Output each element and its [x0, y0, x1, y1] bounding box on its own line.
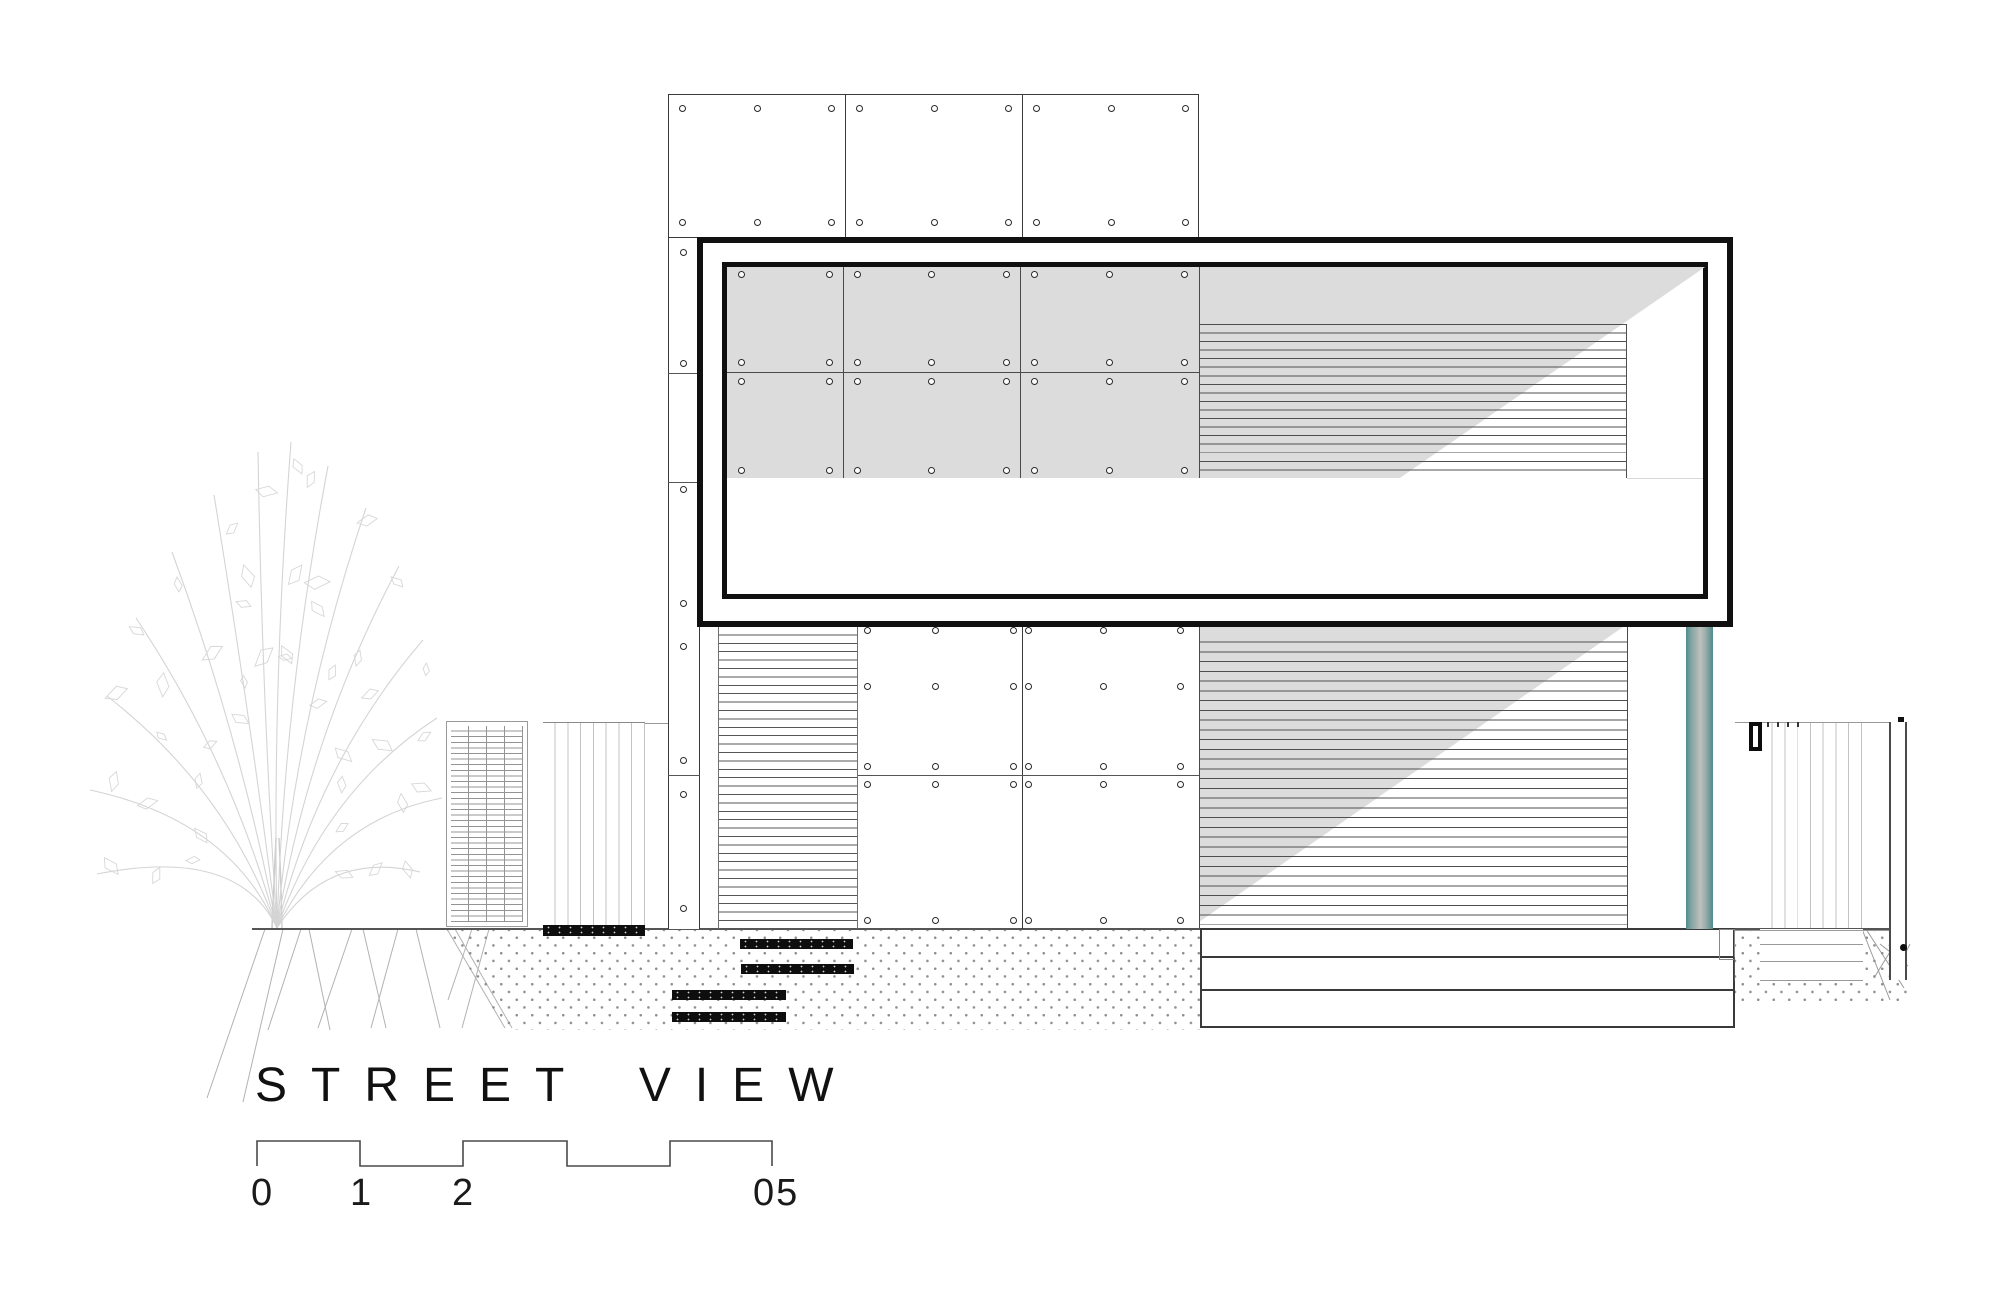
- lower-louver-screen: [1199, 633, 1627, 925]
- panel-bolt: [1177, 683, 1184, 690]
- panel-bolt: [679, 219, 686, 226]
- panel-joint-line: [1627, 478, 1703, 479]
- panel-bolt: [1005, 105, 1012, 112]
- fence-base-step: [543, 925, 645, 936]
- scale-bar-line: [257, 1141, 772, 1166]
- panel-bolt: [1106, 467, 1113, 474]
- left-panel-strip: [668, 238, 700, 929]
- panel-bolt: [1106, 378, 1113, 385]
- scale-label-5: 05: [753, 1172, 799, 1215]
- panel-bolt: [1031, 271, 1038, 278]
- panel-bolt: [1033, 105, 1040, 112]
- panel-bolt: [1010, 763, 1017, 770]
- panel-bolt: [1025, 763, 1032, 770]
- panel-bolt: [680, 600, 687, 607]
- panel-bolt: [1177, 763, 1184, 770]
- panel-bolt: [1181, 271, 1188, 278]
- fence-tick: [1787, 722, 1789, 727]
- panel-bolt: [754, 105, 761, 112]
- panel-bolt: [1025, 627, 1032, 634]
- panel-bolt: [680, 360, 687, 367]
- panel-joint-line: [1199, 267, 1200, 478]
- panel-joint-line: [858, 775, 1199, 776]
- deck-band: [1200, 989, 1735, 1028]
- fence-post-dot: [1900, 944, 1907, 951]
- panel-bolt: [1031, 359, 1038, 366]
- step-tread: [741, 964, 854, 974]
- panel-bolt: [680, 249, 687, 256]
- fence-post: [1889, 722, 1907, 980]
- panel-joint-line: [1627, 627, 1628, 928]
- panel-bolt: [1182, 219, 1189, 226]
- top-panel-band: [668, 94, 1199, 238]
- buried-wall-band: [1760, 929, 1863, 981]
- panel-bolt: [754, 219, 761, 226]
- fence-letterbox: [1749, 722, 1762, 751]
- panel-bolt: [932, 627, 939, 634]
- panel-bolt: [1108, 105, 1115, 112]
- deck-plinth: [1200, 928, 1735, 1028]
- panel-joint-line: [645, 723, 668, 724]
- deck-band: [1200, 928, 1735, 958]
- panel-bolt: [1003, 378, 1010, 385]
- panel-bolt: [1100, 781, 1107, 788]
- panel-bolt: [1108, 219, 1115, 226]
- panel-bolt: [1177, 627, 1184, 634]
- panel-joint-line: [668, 373, 700, 374]
- buried-band-row: [1760, 929, 1863, 945]
- drawing-title: STREET VIEW: [255, 1058, 875, 1113]
- panel-bolt: [826, 271, 833, 278]
- lattice-gate-panel: [446, 721, 528, 927]
- fence-tick: [1767, 722, 1769, 727]
- panel-bolt: [1181, 378, 1188, 385]
- panel-joint-line: [668, 775, 700, 776]
- panel-bolt: [854, 271, 861, 278]
- panel-bolt: [1025, 781, 1032, 788]
- panel-bolt: [1031, 378, 1038, 385]
- step-tread: [740, 939, 853, 949]
- panel-bolt: [932, 763, 939, 770]
- panel-bolt: [928, 467, 935, 474]
- lattice-mesh: [451, 726, 523, 922]
- panel-bolt: [1100, 627, 1107, 634]
- panel-bolt: [1010, 627, 1017, 634]
- panel-bolt: [1106, 271, 1113, 278]
- panel-bolt: [738, 271, 745, 278]
- panel-bolt: [680, 791, 687, 798]
- panel-bolt: [679, 105, 686, 112]
- fence-tick: [1777, 722, 1779, 727]
- panel-bolt: [1182, 105, 1189, 112]
- panel-bolt: [1025, 917, 1032, 924]
- panel-bolt: [1010, 683, 1017, 690]
- panel-bolt: [680, 757, 687, 764]
- panel-bolt: [932, 683, 939, 690]
- scale-label-1: 1: [350, 1172, 373, 1215]
- panel-bolt: [928, 271, 935, 278]
- buried-band-row: [1760, 945, 1863, 962]
- panel-bolt: [680, 486, 687, 493]
- panel-bolt: [864, 763, 871, 770]
- panel-bolt: [932, 917, 939, 924]
- panel-bolt: [1181, 359, 1188, 366]
- panel-bolt: [864, 917, 871, 924]
- elevation-drawing-canvas: STREET VIEW 0 1 2 05: [0, 0, 2000, 1303]
- buried-band-row: [1760, 962, 1863, 981]
- panel-bolt: [864, 683, 871, 690]
- panel-bolt: [856, 105, 863, 112]
- deck-band: [1200, 956, 1735, 991]
- scale-label-0: 0: [251, 1172, 274, 1215]
- panel-bolt: [826, 359, 833, 366]
- panel-bolt: [1181, 467, 1188, 474]
- panel-bolt: [738, 467, 745, 474]
- panel-joint-line: [668, 482, 700, 483]
- panel-joint-line: [1022, 94, 1023, 238]
- panel-bolt: [931, 219, 938, 226]
- panel-bolt: [928, 359, 935, 366]
- step-tread: [672, 990, 786, 1000]
- panel-bolt: [1003, 467, 1010, 474]
- panel-bolt: [864, 627, 871, 634]
- panel-bolt: [738, 378, 745, 385]
- panel-bolt: [932, 781, 939, 788]
- step-tread: [672, 1012, 786, 1022]
- panel-bolt: [1100, 683, 1107, 690]
- fence-post-cap: [1898, 717, 1904, 722]
- panel-bolt: [1106, 359, 1113, 366]
- panel-joint-line: [1199, 627, 1200, 928]
- panel-bolt: [680, 643, 687, 650]
- right-fence-slats: [1760, 723, 1863, 928]
- panel-bolt: [1177, 917, 1184, 924]
- panel-bolt: [1025, 683, 1032, 690]
- panel-bolt: [864, 781, 871, 788]
- panel-bolt: [1031, 467, 1038, 474]
- panel-bolt: [828, 105, 835, 112]
- upper-louver-screen: [1199, 324, 1627, 478]
- panel-bolt: [854, 378, 861, 385]
- panel-bolt: [854, 359, 861, 366]
- panel-bolt: [680, 905, 687, 912]
- panel-joint-line: [727, 372, 1199, 373]
- panel-bolt: [828, 219, 835, 226]
- panel-bolt: [1003, 271, 1010, 278]
- panel-joint-line: [1734, 957, 1735, 981]
- footing-outline: [1719, 929, 1735, 960]
- panel-bolt: [931, 105, 938, 112]
- fence-tick: [1797, 722, 1799, 727]
- panel-bolt: [826, 378, 833, 385]
- panel-bolt: [738, 359, 745, 366]
- panel-bolt: [1005, 219, 1012, 226]
- downpipe: [1686, 627, 1713, 929]
- panel-bolt: [1100, 763, 1107, 770]
- panel-joint-line: [1022, 627, 1023, 929]
- scale-bar: [250, 1135, 790, 1175]
- panel-bolt: [1010, 781, 1017, 788]
- panel-bolt: [1100, 917, 1107, 924]
- panel-bolt: [854, 467, 861, 474]
- panel-bolt: [1010, 917, 1017, 924]
- panel-bolt: [928, 378, 935, 385]
- panel-bolt: [1033, 219, 1040, 226]
- panel-bolt: [826, 467, 833, 474]
- entry-louver-screen: [718, 627, 858, 929]
- panel-joint-line: [845, 94, 846, 238]
- panel-bolt: [1177, 781, 1184, 788]
- left-slat-fence: [543, 722, 645, 927]
- panel-bolt: [856, 219, 863, 226]
- scale-label-2: 2: [452, 1172, 475, 1215]
- panel-bolt: [1003, 359, 1010, 366]
